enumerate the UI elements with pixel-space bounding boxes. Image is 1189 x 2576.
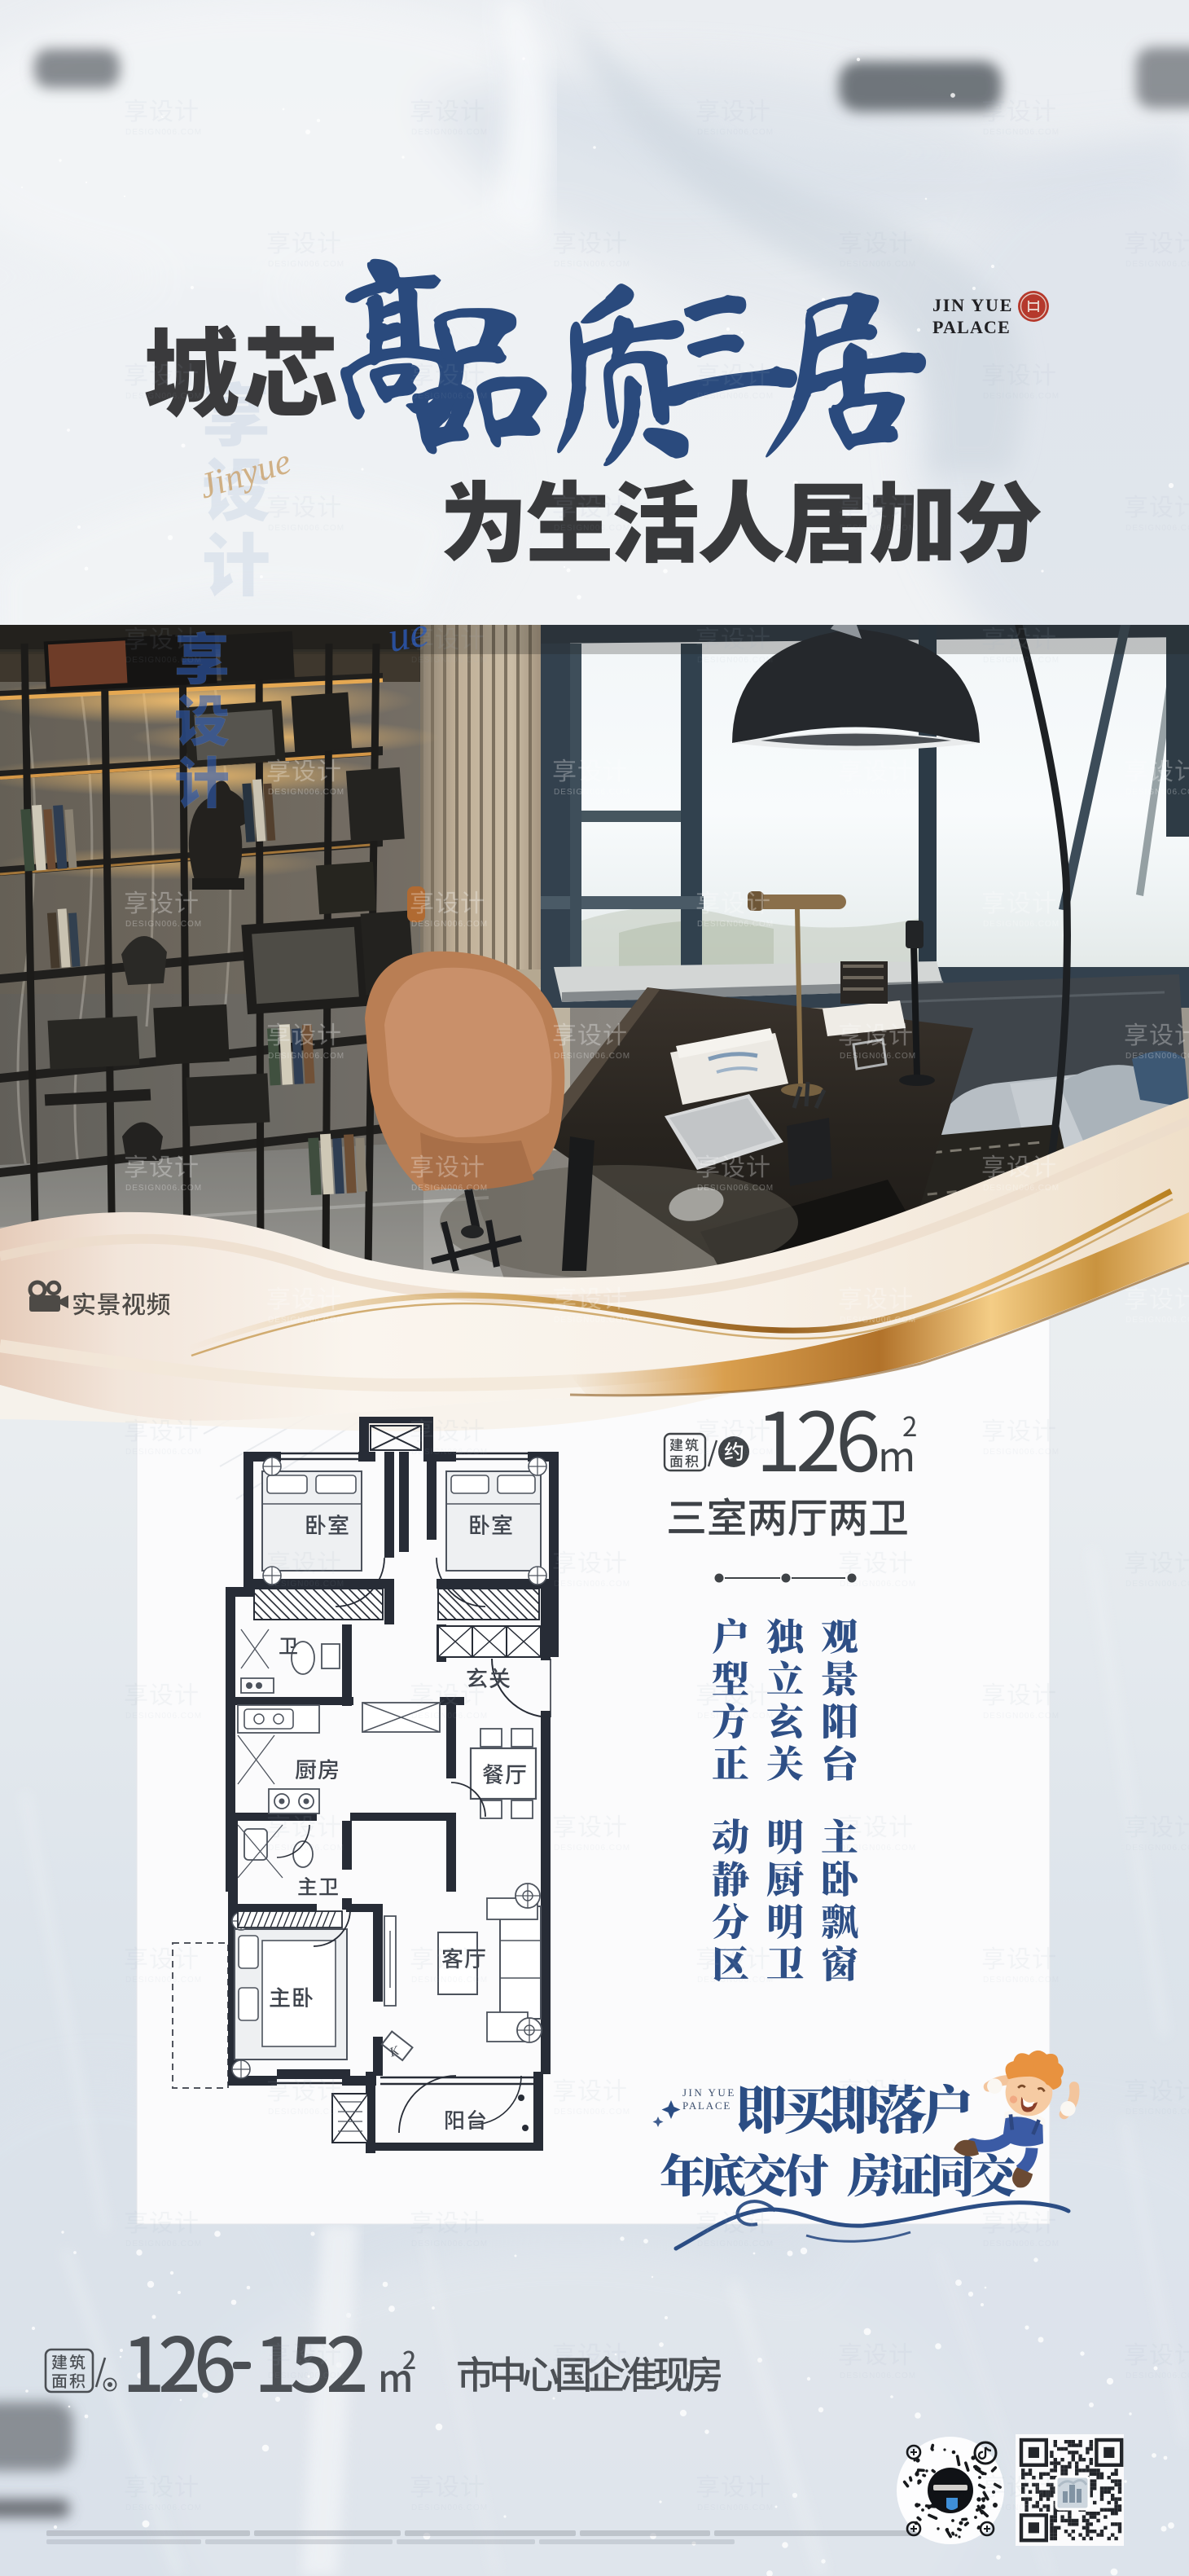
- svg-text:DESIGN006.COM: DESIGN006.COM: [983, 1976, 1060, 1985]
- svg-text:DESIGN006.COM: DESIGN006.COM: [840, 260, 916, 269]
- svg-text:DESIGN006.COM: DESIGN006.COM: [411, 2503, 488, 2512]
- svg-text:DESIGN006.COM: DESIGN006.COM: [840, 1052, 916, 1061]
- svg-text:DESIGN006.COM: DESIGN006.COM: [1125, 1316, 1189, 1325]
- svg-text:DESIGN006.COM: DESIGN006.COM: [1125, 2108, 1189, 2117]
- svg-text:DESIGN006.COM: DESIGN006.COM: [125, 920, 202, 929]
- svg-text:DESIGN006.COM: DESIGN006.COM: [983, 128, 1060, 137]
- svg-text:DESIGN006.COM: DESIGN006.COM: [1125, 1844, 1189, 1853]
- svg-text:DESIGN006.COM: DESIGN006.COM: [554, 2372, 630, 2380]
- svg-text:DESIGN006.COM: DESIGN006.COM: [125, 1712, 202, 1721]
- svg-text:DESIGN006.COM: DESIGN006.COM: [1125, 2372, 1189, 2380]
- svg-text:DESIGN006.COM: DESIGN006.COM: [983, 1184, 1060, 1193]
- svg-text:ue: ue: [384, 609, 432, 662]
- svg-text:DESIGN006.COM: DESIGN006.COM: [697, 656, 774, 665]
- svg-text:DESIGN006.COM: DESIGN006.COM: [268, 1052, 344, 1061]
- svg-text:DESIGN006.COM: DESIGN006.COM: [983, 2240, 1060, 2249]
- svg-text:DESIGN006.COM: DESIGN006.COM: [554, 1844, 630, 1853]
- svg-text:DESIGN006.COM: DESIGN006.COM: [983, 1448, 1060, 1457]
- svg-text:DESIGN006.COM: DESIGN006.COM: [983, 920, 1060, 929]
- svg-text:DESIGN006.COM: DESIGN006.COM: [125, 2503, 202, 2512]
- svg-text:DESIGN006.COM: DESIGN006.COM: [125, 128, 202, 137]
- svg-text:DESIGN006.COM: DESIGN006.COM: [697, 2240, 774, 2249]
- svg-text:DESIGN006.COM: DESIGN006.COM: [840, 1844, 916, 1853]
- svg-text:DESIGN006.COM: DESIGN006.COM: [125, 1184, 202, 1193]
- svg-text:DESIGN006.COM: DESIGN006.COM: [1125, 524, 1189, 533]
- svg-text:DESIGN006.COM: DESIGN006.COM: [840, 524, 916, 533]
- svg-text:DESIGN006.COM: DESIGN006.COM: [411, 920, 488, 929]
- svg-text:DESIGN006.COM: DESIGN006.COM: [411, 2240, 488, 2249]
- svg-text:DESIGN006.COM: DESIGN006.COM: [268, 2372, 344, 2380]
- svg-text:DESIGN006.COM: DESIGN006.COM: [840, 2108, 916, 2117]
- svg-text:DESIGN006.COM: DESIGN006.COM: [1125, 788, 1189, 797]
- svg-text:DESIGN006.COM: DESIGN006.COM: [983, 1712, 1060, 1721]
- svg-text:DESIGN006.COM: DESIGN006.COM: [697, 128, 774, 137]
- svg-text:DESIGN006.COM: DESIGN006.COM: [411, 656, 488, 665]
- svg-text:DESIGN006.COM: DESIGN006.COM: [983, 392, 1060, 401]
- svg-text:DESIGN006.COM: DESIGN006.COM: [411, 392, 488, 401]
- svg-text:DESIGN006.COM: DESIGN006.COM: [1125, 260, 1189, 269]
- svg-text:DESIGN006.COM: DESIGN006.COM: [411, 1976, 488, 1985]
- svg-text:PALACE: PALACE: [682, 2099, 731, 2112]
- svg-text:JIN YUE: JIN YUE: [682, 2086, 736, 2099]
- svg-text:DESIGN006.COM: DESIGN006.COM: [840, 2372, 916, 2380]
- svg-text:DESIGN006.COM: DESIGN006.COM: [268, 2108, 344, 2117]
- svg-text:DESIGN006.COM: DESIGN006.COM: [268, 260, 344, 269]
- svg-text:DESIGN006.COM: DESIGN006.COM: [697, 1976, 774, 1985]
- svg-text:DESIGN006.COM: DESIGN006.COM: [554, 2108, 630, 2117]
- svg-text:DESIGN006.COM: DESIGN006.COM: [411, 1448, 488, 1457]
- svg-text:DESIGN006.COM: DESIGN006.COM: [125, 2240, 202, 2249]
- svg-text:DESIGN006.COM: DESIGN006.COM: [983, 656, 1060, 665]
- svg-text:DESIGN006.COM: DESIGN006.COM: [125, 656, 202, 665]
- svg-text:DESIGN006.COM: DESIGN006.COM: [268, 1580, 344, 1589]
- svg-text:DESIGN006.COM: DESIGN006.COM: [411, 1184, 488, 1193]
- svg-text:DESIGN006.COM: DESIGN006.COM: [554, 260, 630, 269]
- svg-text:DESIGN006.COM: DESIGN006.COM: [125, 392, 202, 401]
- svg-text:DESIGN006.COM: DESIGN006.COM: [554, 788, 630, 797]
- svg-text:DESIGN006.COM: DESIGN006.COM: [697, 1448, 774, 1457]
- svg-text:PALACE: PALACE: [932, 317, 1011, 337]
- svg-text:DESIGN006.COM: DESIGN006.COM: [554, 1052, 630, 1061]
- svg-text:DESIGN006.COM: DESIGN006.COM: [268, 1316, 344, 1325]
- svg-text:DESIGN006.COM: DESIGN006.COM: [125, 1448, 202, 1457]
- svg-text:DESIGN006.COM: DESIGN006.COM: [840, 1316, 916, 1325]
- svg-text:DESIGN006.COM: DESIGN006.COM: [840, 788, 916, 797]
- svg-text:DESIGN006.COM: DESIGN006.COM: [840, 1580, 916, 1589]
- svg-text:DESIGN006.COM: DESIGN006.COM: [983, 2503, 1060, 2512]
- svg-text:DESIGN006.COM: DESIGN006.COM: [411, 1712, 488, 1721]
- svg-text:DESIGN006.COM: DESIGN006.COM: [1125, 1580, 1189, 1589]
- svg-text:DESIGN006.COM: DESIGN006.COM: [268, 1844, 344, 1853]
- svg-text:JIN YUE: JIN YUE: [932, 295, 1013, 315]
- svg-text:DESIGN006.COM: DESIGN006.COM: [697, 1712, 774, 1721]
- svg-text:DESIGN006.COM: DESIGN006.COM: [697, 392, 774, 401]
- svg-text:DESIGN006.COM: DESIGN006.COM: [268, 524, 344, 533]
- svg-text:DESIGN006.COM: DESIGN006.COM: [268, 788, 344, 797]
- svg-text:DESIGN006.COM: DESIGN006.COM: [125, 1976, 202, 1985]
- svg-text:DESIGN006.COM: DESIGN006.COM: [554, 1580, 630, 1589]
- svg-text:DESIGN006.COM: DESIGN006.COM: [697, 920, 774, 929]
- svg-text:DESIGN006.COM: DESIGN006.COM: [554, 1316, 630, 1325]
- svg-text:DESIGN006.COM: DESIGN006.COM: [1125, 1052, 1189, 1061]
- svg-text:DESIGN006.COM: DESIGN006.COM: [697, 2503, 774, 2512]
- svg-text:DESIGN006.COM: DESIGN006.COM: [554, 524, 630, 533]
- svg-text:DESIGN006.COM: DESIGN006.COM: [411, 128, 488, 137]
- svg-text:DESIGN006.COM: DESIGN006.COM: [697, 1184, 774, 1193]
